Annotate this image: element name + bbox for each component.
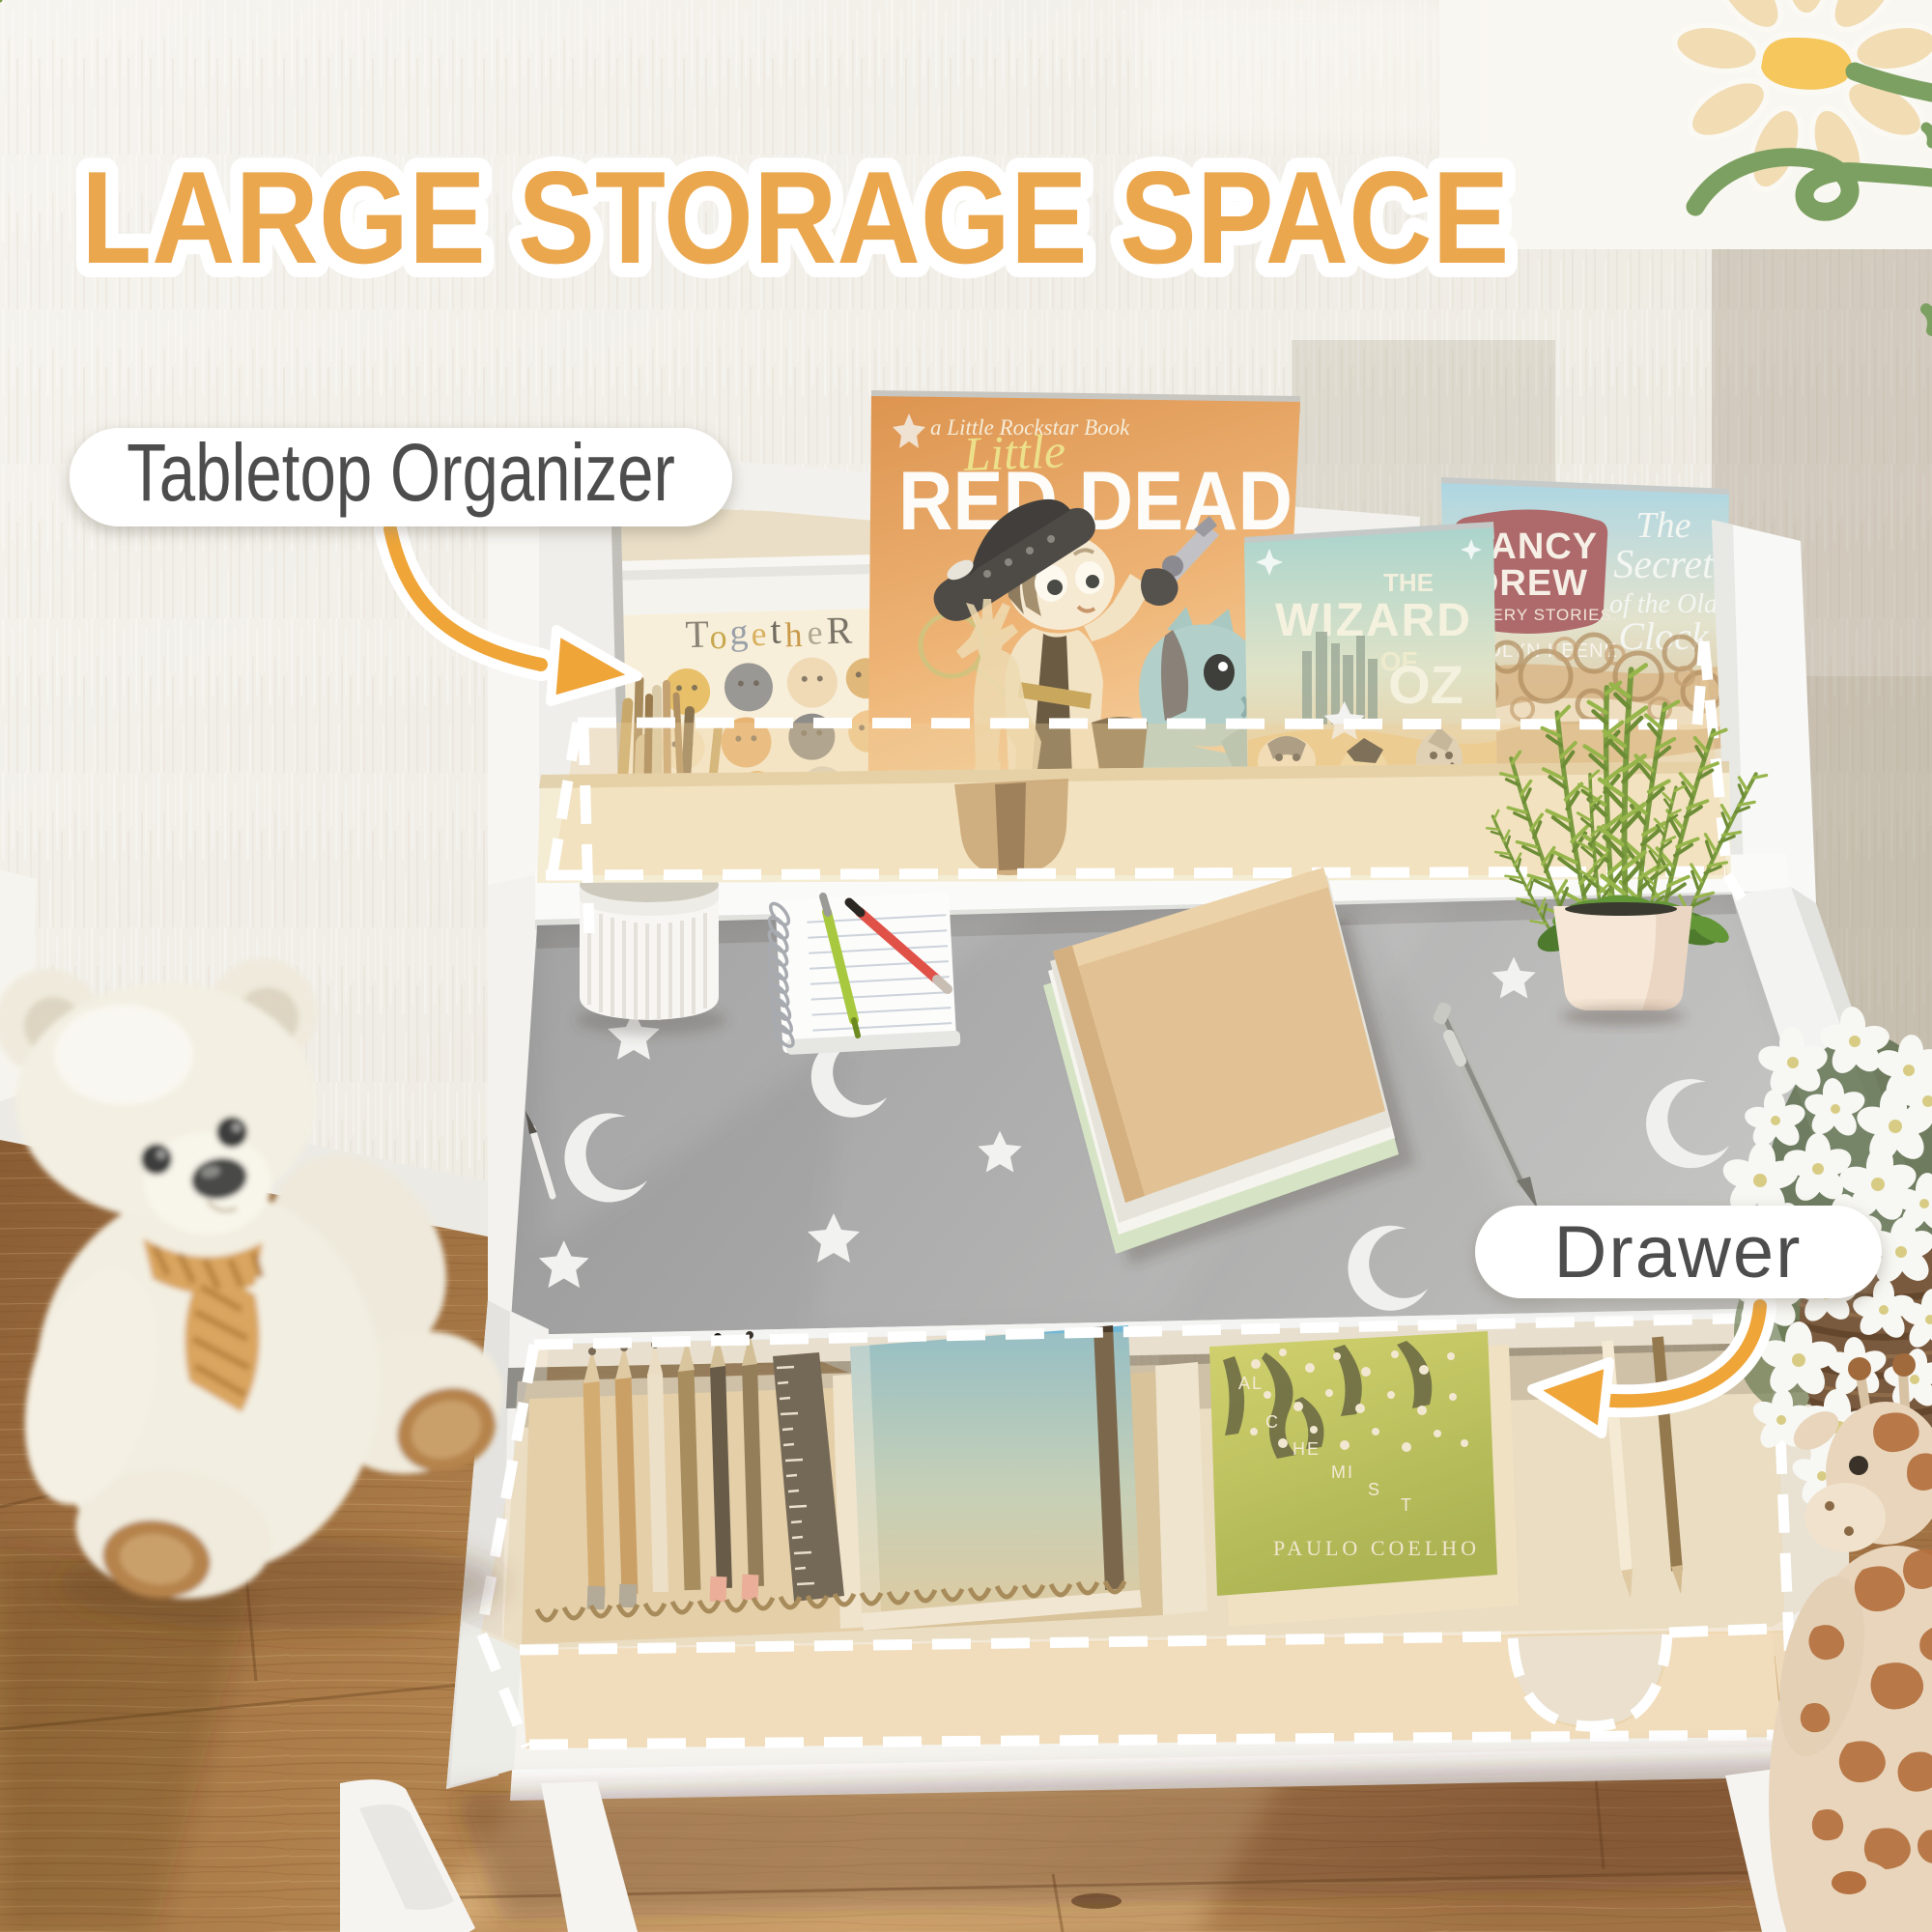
svg-text:e: e [807, 612, 823, 651]
svg-text:WIZARD: WIZARD [1275, 595, 1472, 646]
svg-text:OZ: OZ [1388, 654, 1463, 715]
svg-text:T: T [685, 611, 712, 656]
svg-text:o: o [709, 617, 727, 656]
svg-text:Drawer: Drawer [1554, 1211, 1803, 1293]
svg-text:Secret: Secret [1613, 543, 1715, 587]
svg-text:h: h [784, 615, 803, 654]
svg-text:Tabletop Organizer: Tabletop Organizer [127, 428, 675, 519]
svg-text:t: t [770, 608, 781, 651]
svg-text:e: e [751, 614, 767, 653]
svg-text:The: The [1636, 505, 1691, 546]
svg-text:LARGE STORAGE SPACE: LARGE STORAGE SPACE [81, 145, 1509, 292]
svg-text:R: R [826, 609, 853, 653]
svg-text:RED DEAD: RED DEAD [898, 455, 1293, 548]
svg-text:THE: THE [1383, 568, 1434, 597]
svg-text:g: g [729, 611, 749, 652]
